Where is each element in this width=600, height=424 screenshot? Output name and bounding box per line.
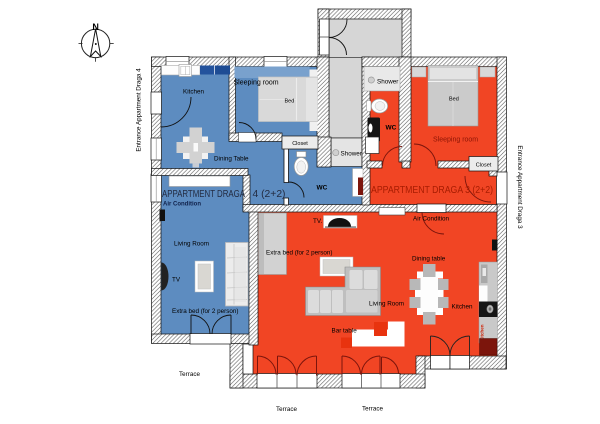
svg-text:Extra bed (for 2 person): Extra bed (for 2 person) (172, 308, 239, 315)
svg-text:4 (2+2): 4 (2+2) (253, 189, 286, 200)
svg-text:Entrance Appartment Draga 3: Entrance Appartment Draga 3 (516, 145, 523, 229)
svg-text:Shower: Shower (341, 151, 362, 158)
svg-text:WC: WC (386, 125, 397, 132)
svg-text:Closet: Closet (476, 163, 492, 169)
svg-text:WC: WC (317, 185, 328, 192)
svg-text:Bed: Bed (285, 99, 295, 105)
svg-text:Dining Table: Dining Table (214, 156, 249, 163)
svg-text:Living Room: Living Room (174, 241, 209, 248)
svg-text:Kitchen: Kitchen (183, 89, 205, 96)
svg-text:Terrace: Terrace (179, 371, 200, 378)
svg-text:APPARTMENT DRAGA 3 (2+2): APPARTMENT DRAGA 3 (2+2) (371, 185, 493, 196)
svg-text:Kitchen: Kitchen (452, 304, 474, 311)
svg-text:Bar table: Bar table (332, 328, 358, 335)
svg-text:Extra bed (for 2 person): Extra bed (for 2 person) (266, 250, 333, 257)
svg-text:Closet: Closet (292, 141, 308, 147)
svg-text:Bed: Bed (449, 97, 459, 103)
svg-text:Entrance Appartment Draga 4: Entrance Appartment Draga 4 (136, 68, 143, 152)
svg-text:TV.: TV. (313, 218, 322, 225)
svg-text:Shower: Shower (377, 79, 398, 86)
svg-text:Terrace: Terrace (276, 406, 297, 413)
svg-text:Sleeping room: Sleeping room (433, 137, 478, 144)
svg-text:TV: TV (172, 277, 181, 284)
svg-text:Air Condition: Air Condition (163, 202, 201, 208)
svg-text:APPARTMENT DRAGA: APPARTMENT DRAGA (162, 189, 245, 200)
svg-text:N: N (92, 22, 99, 32)
svg-text:Sleeping room: Sleeping room (234, 80, 279, 87)
svg-text:Air Condition: Air Condition (413, 216, 450, 223)
svg-text:Living Room: Living Room (369, 301, 404, 308)
svg-text:Terrace: Terrace (362, 406, 383, 413)
svg-text:Dining table: Dining table (412, 256, 446, 263)
